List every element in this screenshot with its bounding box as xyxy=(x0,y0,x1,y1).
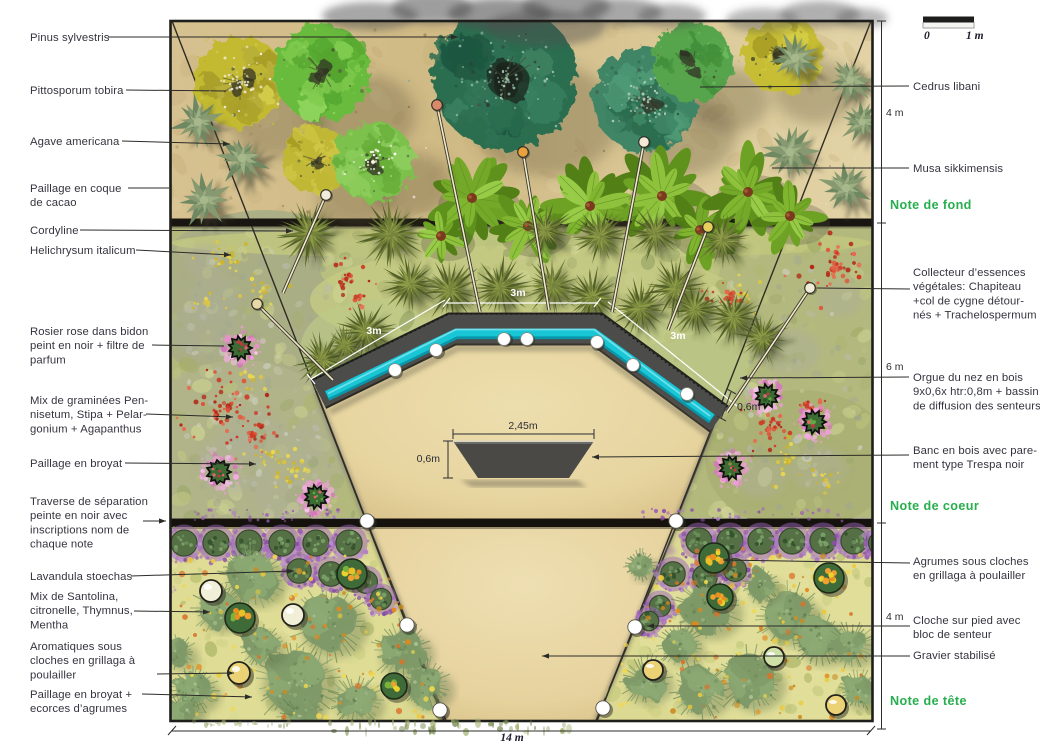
svg-text:2,45m: 2,45m xyxy=(508,420,537,432)
svg-text:3m: 3m xyxy=(670,330,685,342)
svg-text:0,6m: 0,6m xyxy=(737,401,761,413)
svg-text:3m: 3m xyxy=(510,287,525,299)
svg-text:0,6m: 0,6m xyxy=(417,453,441,465)
svg-text:3m: 3m xyxy=(366,325,381,337)
